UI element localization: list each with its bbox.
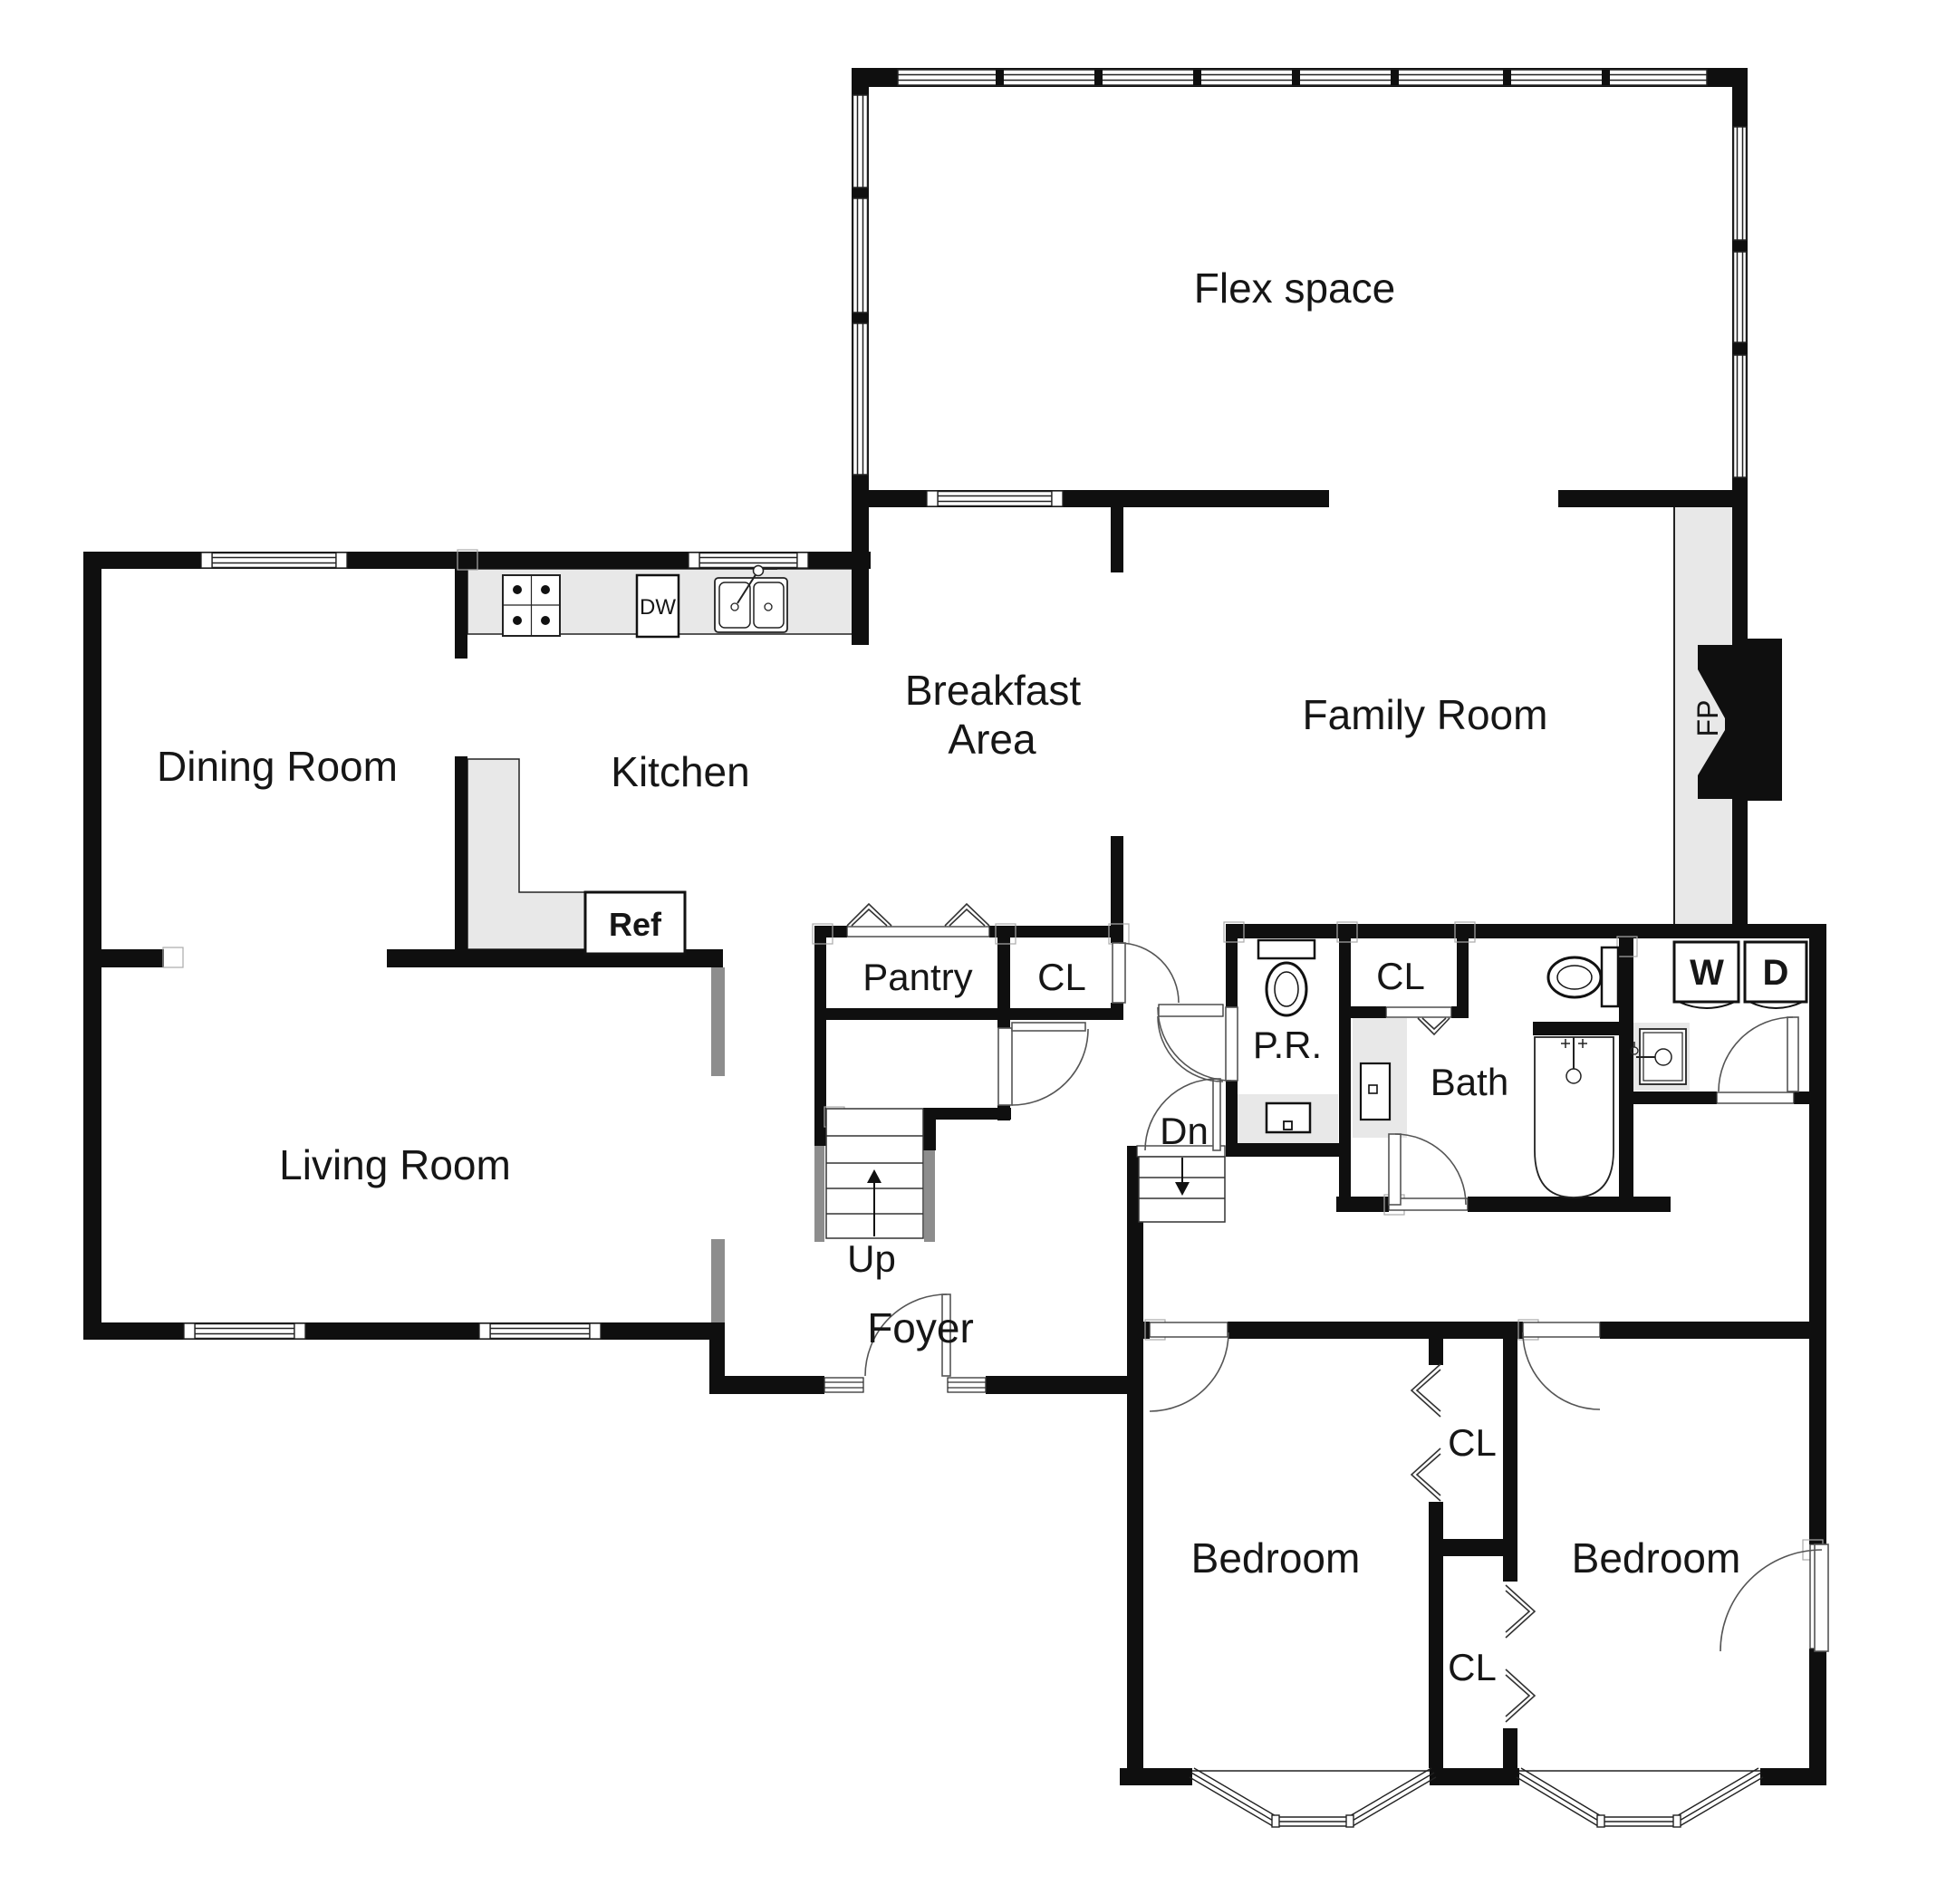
svg-text:Kitchen: Kitchen [611,748,749,795]
svg-text:Up: Up [847,1237,896,1280]
svg-text:DW: DW [640,595,676,620]
svg-text:Breakfast: Breakfast [905,667,1082,714]
svg-text:Bedroom: Bedroom [1572,1534,1741,1582]
svg-text:D: D [1763,953,1789,993]
svg-text:Dining Room: Dining Room [157,743,398,790]
svg-text:CL: CL [1376,955,1425,997]
svg-text:P.R.: P.R. [1253,1024,1322,1066]
svg-text:Foyer: Foyer [867,1304,974,1351]
svg-text:Ref: Ref [609,906,662,943]
svg-text:W: W [1690,953,1724,993]
svg-text:CL: CL [1448,1646,1497,1688]
svg-text:FP: FP [1691,700,1724,737]
svg-text:Pantry: Pantry [862,956,972,998]
svg-text:CL: CL [1037,956,1086,998]
svg-text:CL: CL [1448,1421,1497,1464]
svg-text:Family Room: Family Room [1303,691,1548,738]
svg-text:Area: Area [948,716,1036,763]
svg-text:Bedroom: Bedroom [1191,1534,1361,1582]
svg-text:Flex space: Flex space [1194,264,1395,312]
svg-text:Living Room: Living Room [279,1141,511,1188]
svg-text:Dn: Dn [1160,1110,1209,1152]
svg-text:Bath: Bath [1431,1061,1508,1103]
